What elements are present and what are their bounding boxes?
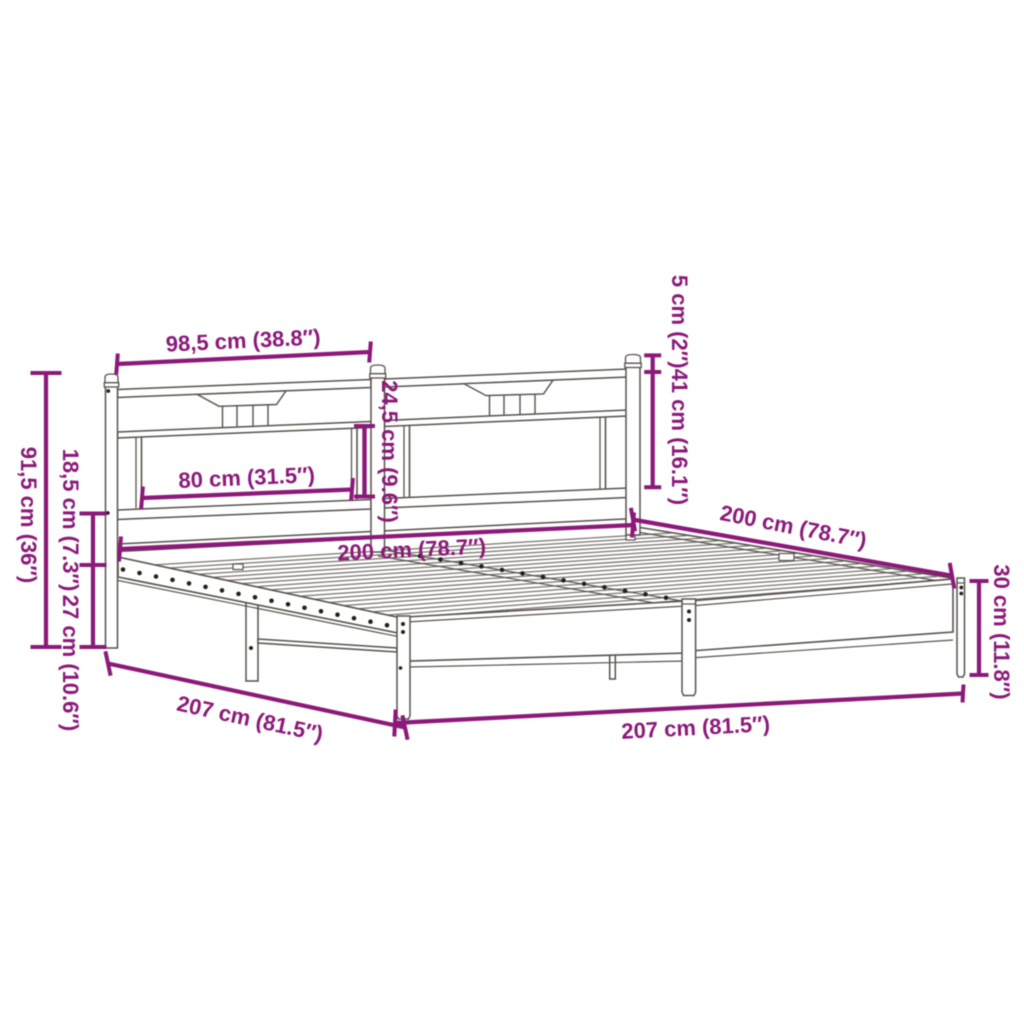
svg-text:91,5 cm (36″): 91,5 cm (36″)	[16, 447, 41, 584]
svg-text:30 cm (11.8″): 30 cm (11.8″)	[989, 564, 1014, 699]
svg-text:27 cm (10.6″): 27 cm (10.6″)	[58, 595, 83, 732]
svg-text:24,5 cm (9.6″): 24,5 cm (9.6″)	[377, 380, 402, 523]
svg-text:18,5 cm (7.3″): 18,5 cm (7.3″)	[58, 449, 83, 592]
svg-text:5 cm (2″)41 cm (16.1″): 5 cm (2″)41 cm (16.1″)	[667, 275, 692, 505]
